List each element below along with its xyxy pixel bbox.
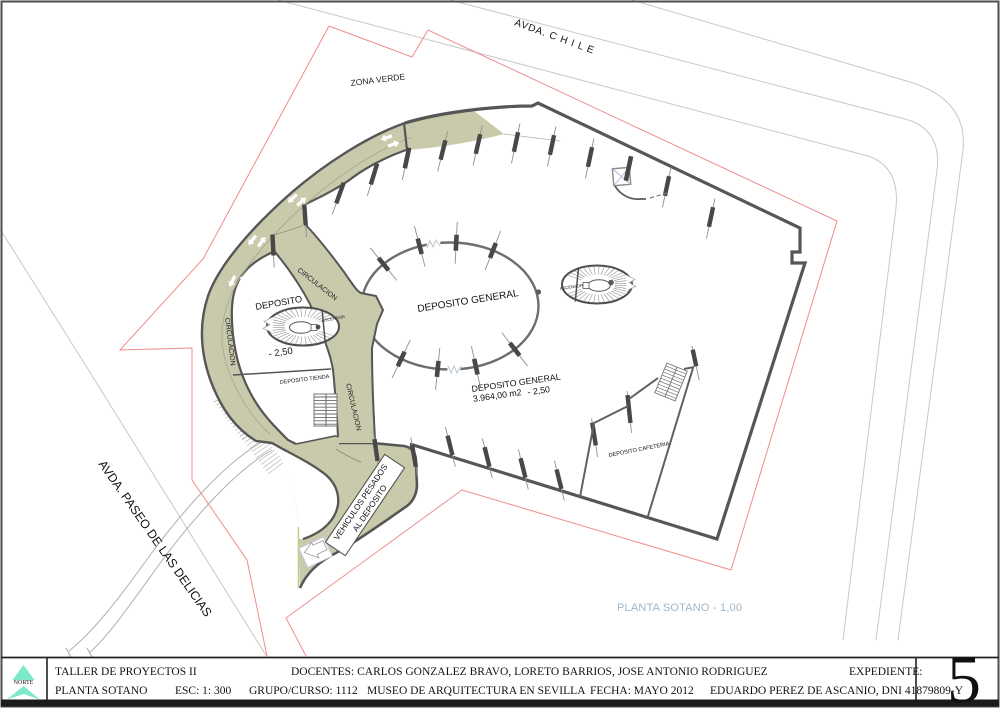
svg-text:5: 5	[947, 641, 981, 708]
svg-text:PLANTA SOTANO: PLANTA SOTANO	[55, 685, 147, 697]
svg-text:EXPEDIENTE:: EXPEDIENTE:	[849, 666, 922, 678]
svg-text:ESC: 1: 300: ESC: 1: 300	[175, 685, 231, 697]
svg-text:PLANTA SOTANO - 1,00: PLANTA SOTANO - 1,00	[617, 602, 742, 614]
svg-text:DOCENTES: CARLOS GONZALEZ BRA: DOCENTES: CARLOS GONZALEZ BRAVO, LORETO …	[291, 666, 768, 678]
svg-text:FECHA: MAYO 2012: FECHA: MAYO 2012	[590, 685, 694, 697]
svg-text:GRUPO/CURSO: 1112: GRUPO/CURSO: 1112	[249, 685, 358, 697]
svg-text:TALLER DE PROYECTOS II: TALLER DE PROYECTOS II	[55, 666, 197, 678]
svg-text:MUSEO DE ARQUITECTURA EN SEVIL: MUSEO DE ARQUITECTURA EN SEVILLA	[367, 685, 586, 697]
svg-text:NORTE: NORTE	[14, 680, 34, 686]
svg-text:EDUARDO PEREZ DE ASCANIO, DNI: EDUARDO PEREZ DE ASCANIO, DNI 41879809-Y	[710, 685, 964, 697]
